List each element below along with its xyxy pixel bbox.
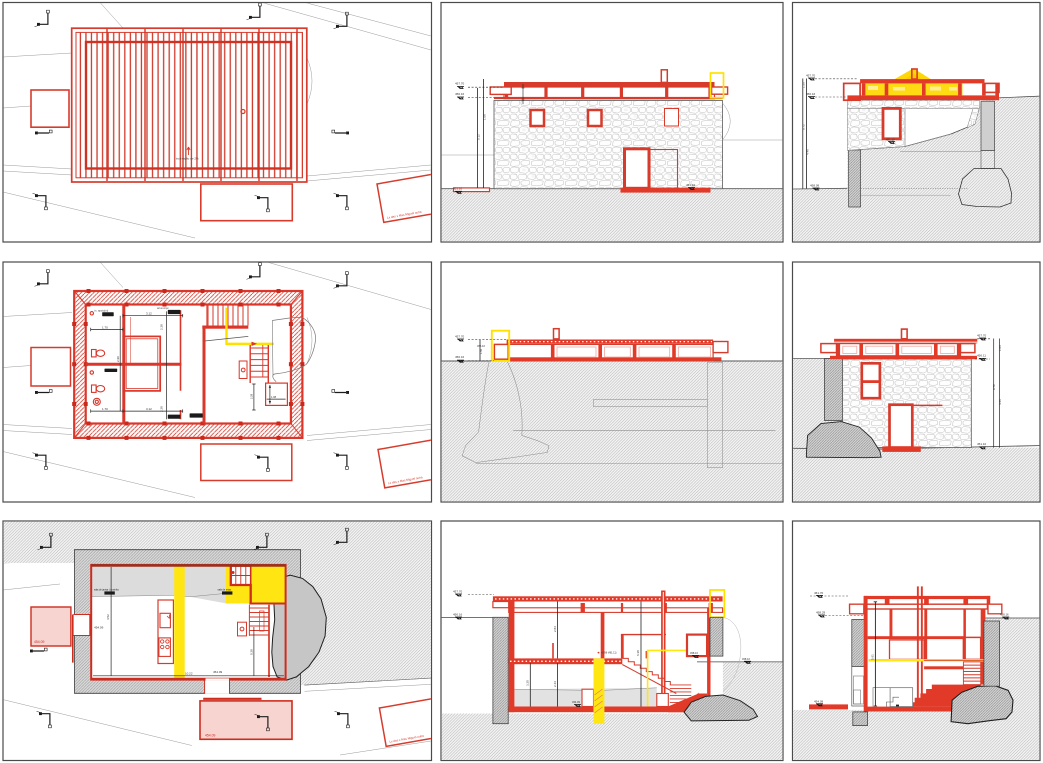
- svg-text:9.72: 9.72: [801, 124, 805, 130]
- svg-text:2.28: 2.28: [250, 393, 254, 399]
- svg-text:2.84: 2.84: [553, 626, 557, 632]
- svg-text:2.44: 2.44: [553, 681, 557, 687]
- svg-text:457.70: 457.70: [977, 334, 987, 338]
- svg-text:454.09: 454.09: [205, 734, 215, 738]
- svg-text:1.08: 1.08: [271, 395, 277, 399]
- svg-text:sala de jantar | cozinha: sala de jantar | cozinha: [94, 588, 119, 591]
- svg-text:4.46: 4.46: [805, 149, 809, 155]
- svg-text:458.29: 458.29: [816, 611, 826, 615]
- svg-text:10.22: 10.22: [185, 672, 193, 676]
- svg-text:1.56: 1.56: [801, 82, 805, 88]
- svg-text:9.72: 9.72: [992, 384, 996, 390]
- svg-text:1.06: 1.06: [998, 345, 1002, 351]
- svg-text:458.16: 458.16: [690, 651, 698, 655]
- svg-text:458.16: 458.16: [742, 657, 750, 661]
- svg-text:2.28: 2.28: [160, 324, 164, 330]
- svg-text:0.28: 0.28: [249, 649, 253, 655]
- svg-text:454.09: 454.09: [34, 640, 44, 644]
- svg-text:+0.98 (461.11): +0.98 (461.11): [601, 652, 617, 655]
- svg-text:1.70: 1.70: [102, 325, 108, 329]
- svg-text:451.10: 451.10: [453, 187, 463, 191]
- svg-text:451.10: 451.10: [977, 442, 987, 446]
- svg-text:5.12: 5.12: [476, 134, 480, 140]
- svg-text:3.20: 3.20: [526, 680, 530, 686]
- svg-text:456.16: 456.16: [477, 344, 485, 348]
- svg-text:454.09: 454.09: [213, 670, 223, 674]
- svg-text:1.56: 1.56: [479, 348, 483, 354]
- svg-text:451.10: 451.10: [686, 183, 696, 187]
- svg-text:458.16: 458.16: [1000, 613, 1009, 617]
- svg-text:461.70: 461.70: [814, 591, 824, 595]
- svg-text:4.52: 4.52: [106, 614, 110, 620]
- svg-text:457.70: 457.70: [806, 74, 816, 78]
- svg-text:1.70: 1.70: [102, 407, 108, 411]
- svg-text:456.16: 456.16: [455, 92, 465, 96]
- svg-text:sala de estar: sala de estar: [218, 588, 232, 591]
- svg-text:arrumo/pc: arrumo/pc: [157, 306, 169, 310]
- svg-text:456.16: 456.16: [806, 92, 816, 96]
- svg-text:1.08: 1.08: [482, 114, 486, 120]
- svg-text:457.70: 457.70: [455, 335, 465, 339]
- svg-text:457.70: 457.70: [453, 590, 463, 594]
- svg-text:2.28: 2.28: [160, 406, 164, 412]
- svg-text:3.12: 3.12: [146, 407, 152, 411]
- svg-text:454.09: 454.09: [814, 699, 824, 703]
- svg-text:457.70: 457.70: [455, 82, 465, 86]
- svg-text:456.16: 456.16: [453, 613, 463, 617]
- svg-text:2.90: 2.90: [116, 356, 120, 362]
- svg-text:i.s. apoio(m): i.s. apoio(m): [94, 308, 108, 312]
- svg-text:3.12: 3.12: [146, 312, 152, 316]
- svg-text:5.61: 5.61: [871, 654, 875, 660]
- svg-text:456.16: 456.16: [455, 355, 465, 359]
- svg-text:4.46: 4.46: [998, 399, 1002, 405]
- svg-text:456.11: 456.11: [977, 354, 986, 358]
- svg-text:451.10: 451.10: [886, 138, 895, 142]
- svg-text:454.09: 454.09: [94, 626, 104, 630]
- svg-text:6.38: 6.38: [636, 650, 640, 656]
- svg-text:454.09: 454.09: [572, 700, 580, 704]
- svg-text:458.09: 458.09: [810, 184, 820, 188]
- svg-text:inclinação de 2%: inclinação de 2%: [176, 157, 199, 161]
